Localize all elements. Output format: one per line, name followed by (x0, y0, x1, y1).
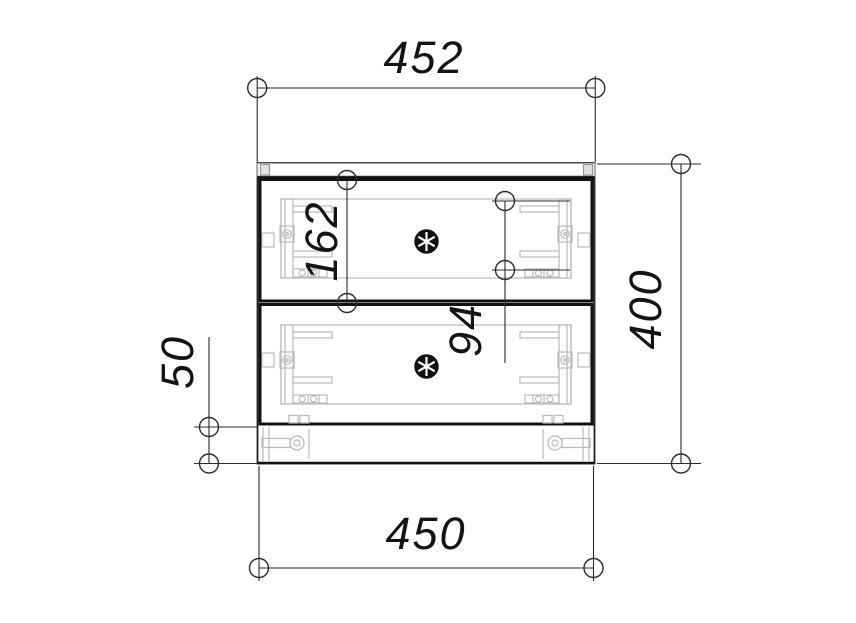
worktop-strip (258, 164, 595, 177)
dimension-left-label: 50 (152, 335, 203, 389)
drawer-2 (260, 305, 592, 425)
dimension-right: 400 (597, 155, 701, 474)
dimension-top: 452 (248, 32, 605, 162)
technical-drawing-canvas: 452 400 450 50 162 (0, 0, 856, 623)
dimension-inner-drawer-label: 162 (296, 200, 347, 281)
dimension-left: 50 (152, 335, 258, 473)
dimension-top-label: 452 (383, 32, 464, 83)
dimension-right-label: 400 (620, 268, 671, 349)
dimension-bottom-label: 450 (385, 508, 466, 559)
drawing-svg: 452 400 450 50 162 (0, 0, 856, 623)
dimension-bottom: 450 (250, 466, 604, 581)
dimension-inner-slide-label: 94 (440, 303, 491, 357)
drawer-1-knob-icon (416, 231, 438, 253)
drawer-2-knob-icon (416, 356, 438, 378)
